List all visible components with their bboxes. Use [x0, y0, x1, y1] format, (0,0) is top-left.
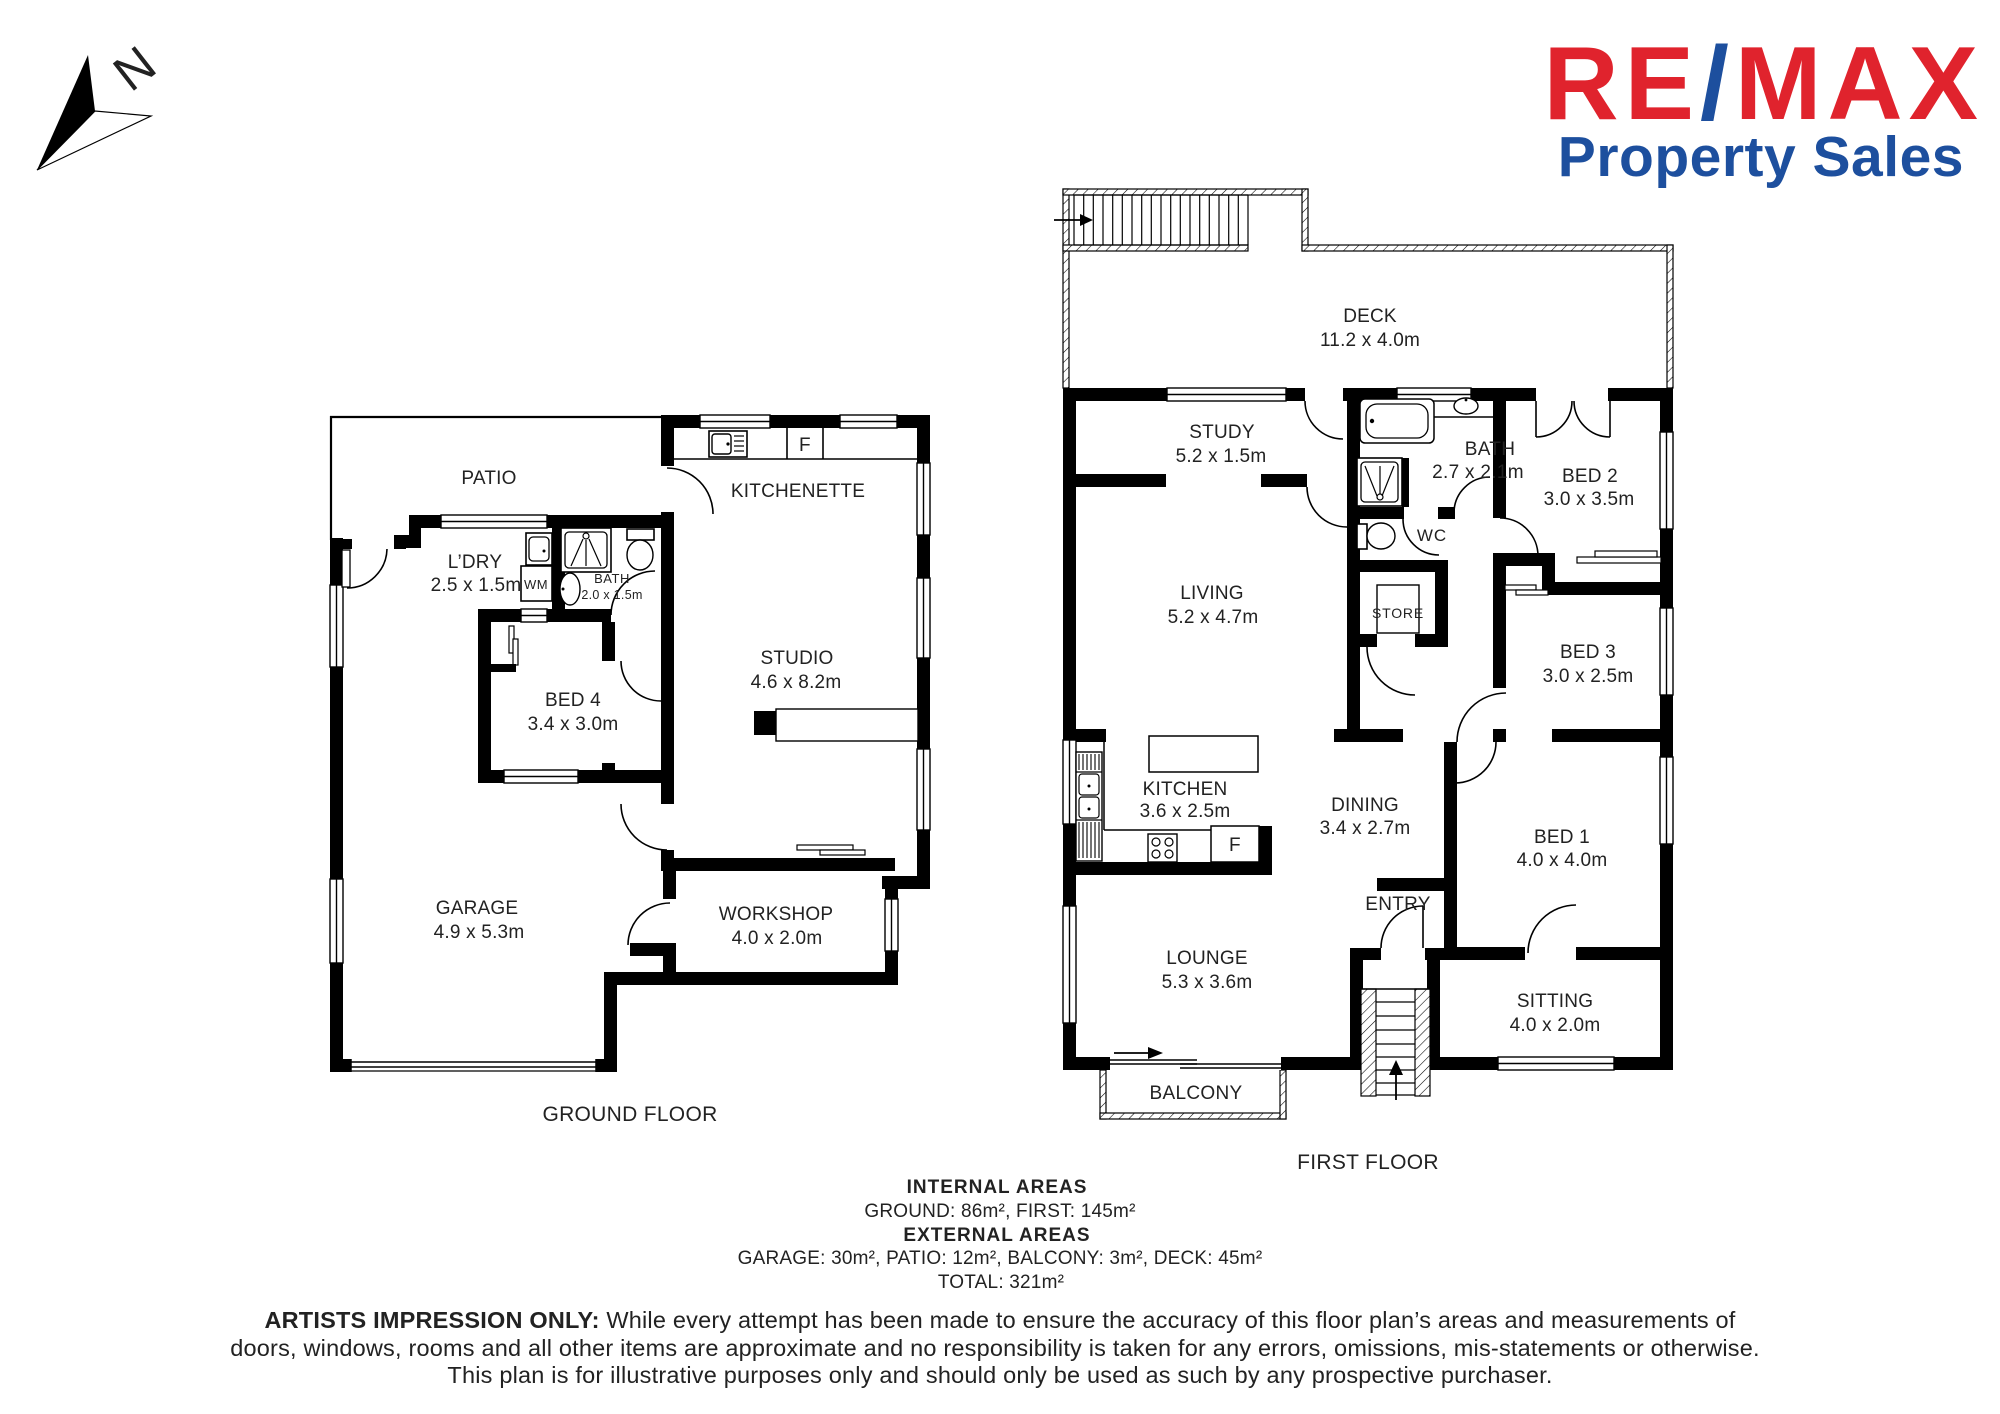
- svg-text:WC: WC: [1417, 526, 1447, 545]
- svg-text:4.6 x 8.2m: 4.6 x 8.2m: [751, 672, 842, 693]
- svg-text:STORE: STORE: [1372, 605, 1424, 621]
- svg-text:INTERNAL AREAS: INTERNAL AREAS: [907, 1177, 1088, 1198]
- svg-text:3.4 x 3.0m: 3.4 x 3.0m: [528, 714, 619, 735]
- svg-text:GARAGE: 30m², PATIO: 12m², BAL: GARAGE: 30m², PATIO: 12m², BALCONY: 3m²,…: [738, 1248, 1263, 1269]
- svg-text:BALCONY: BALCONY: [1150, 1083, 1243, 1104]
- svg-text:5.3 x 3.6m: 5.3 x 3.6m: [1162, 972, 1253, 993]
- svg-text:STUDIO: STUDIO: [761, 648, 834, 669]
- svg-text:2.0 x 1.5m: 2.0 x 1.5m: [581, 588, 642, 602]
- svg-text:KITCHENETTE: KITCHENETTE: [731, 481, 865, 502]
- svg-text:WM: WM: [524, 577, 548, 592]
- svg-text:ENTRY: ENTRY: [1365, 894, 1431, 915]
- svg-text:BED 3: BED 3: [1560, 642, 1616, 663]
- svg-text:DINING: DINING: [1331, 795, 1399, 816]
- svg-text:TOTAL: 321m²: TOTAL: 321m²: [938, 1272, 1064, 1293]
- svg-text:BATH: BATH: [1465, 439, 1515, 460]
- svg-text:WORKSHOP: WORKSHOP: [719, 904, 834, 925]
- svg-text:STUDY: STUDY: [1189, 422, 1255, 443]
- svg-text:BED 1: BED 1: [1534, 827, 1590, 848]
- svg-text:F: F: [799, 435, 811, 456]
- svg-text:Property Sales: Property Sales: [1558, 125, 1964, 189]
- svg-text:11.2 x 4.0m: 11.2 x 4.0m: [1320, 330, 1420, 351]
- svg-text:4.9 x 5.3m: 4.9 x 5.3m: [434, 922, 525, 943]
- svg-text:DECK: DECK: [1343, 306, 1397, 327]
- svg-text:3.0 x 2.5m: 3.0 x 2.5m: [1543, 666, 1634, 687]
- svg-text:KITCHEN: KITCHEN: [1143, 779, 1228, 800]
- svg-text:doors, windows, rooms and all: doors, windows, rooms and all other item…: [230, 1335, 1760, 1361]
- svg-text:3.4 x 2.7m: 3.4 x 2.7m: [1320, 818, 1411, 839]
- svg-text:GROUND: 86m², FIRST: 145m²: GROUND: 86m², FIRST: 145m²: [864, 1201, 1135, 1222]
- svg-text:This plan is for illustrative: This plan is for illustrative purposes o…: [447, 1362, 1552, 1388]
- svg-text:LOUNGE: LOUNGE: [1166, 948, 1247, 969]
- svg-text:4.0 x 2.0m: 4.0 x 2.0m: [732, 928, 823, 949]
- svg-text:5.2 x 1.5m: 5.2 x 1.5m: [1176, 446, 1267, 467]
- svg-text:ARTISTS IMPRESSION ONLY: While: ARTISTS IMPRESSION ONLY: While every att…: [264, 1307, 1735, 1333]
- svg-text:BATH: BATH: [594, 571, 630, 586]
- svg-text:LIVING: LIVING: [1180, 583, 1244, 604]
- svg-text:3.0 x 3.5m: 3.0 x 3.5m: [1544, 489, 1635, 510]
- svg-text:4.0 x 4.0m: 4.0 x 4.0m: [1517, 850, 1608, 871]
- svg-text:BED 2: BED 2: [1562, 466, 1618, 487]
- svg-text:EXTERNAL AREAS: EXTERNAL AREAS: [903, 1225, 1090, 1246]
- svg-text:2.5 x 1.5m: 2.5 x 1.5m: [431, 575, 522, 596]
- svg-text:GARAGE: GARAGE: [436, 898, 519, 919]
- svg-text:5.2 x 4.7m: 5.2 x 4.7m: [1168, 607, 1259, 628]
- svg-text:SITTING: SITTING: [1517, 991, 1593, 1012]
- svg-text:2.7 x 2.1m: 2.7 x 2.1m: [1432, 462, 1524, 483]
- svg-text:PATIO: PATIO: [461, 468, 516, 489]
- svg-text:4.0 x 2.0m: 4.0 x 2.0m: [1510, 1015, 1601, 1036]
- svg-text:F: F: [1229, 835, 1241, 856]
- svg-text:BED 4: BED 4: [545, 690, 601, 711]
- svg-text:GROUND FLOOR: GROUND FLOOR: [542, 1103, 717, 1126]
- svg-text:FIRST FLOOR: FIRST FLOOR: [1297, 1151, 1439, 1174]
- svg-text:3.6 x 2.5m: 3.6 x 2.5m: [1140, 801, 1231, 822]
- svg-text:L’DRY: L’DRY: [448, 552, 503, 573]
